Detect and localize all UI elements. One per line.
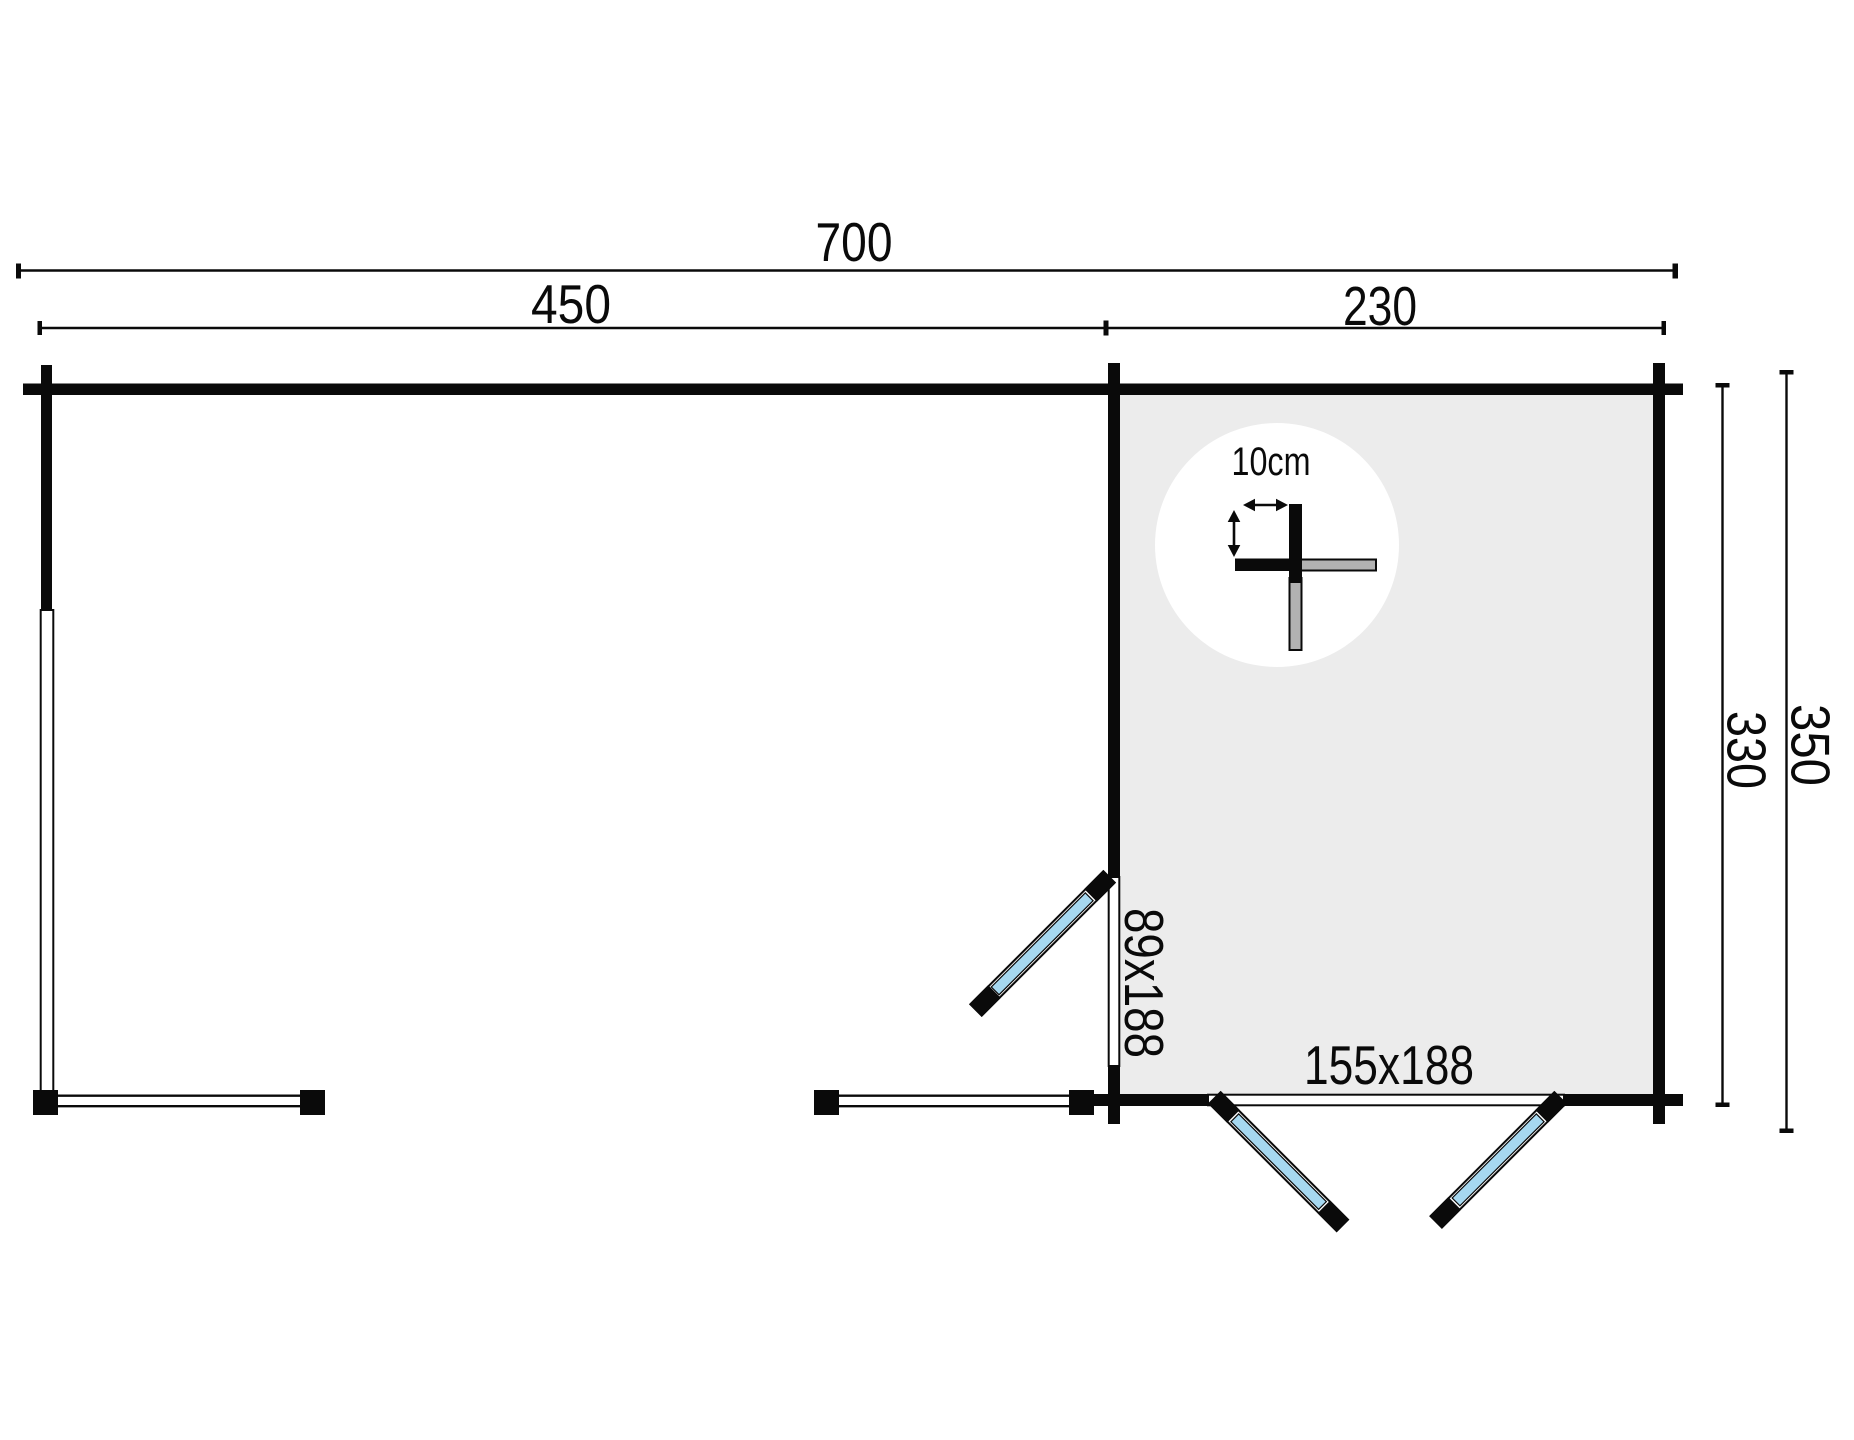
svg-text:10cm: 10cm [1232, 440, 1311, 484]
svg-text:350: 350 [1780, 704, 1842, 786]
svg-text:155x188: 155x188 [1304, 1034, 1474, 1096]
svg-text:450: 450 [531, 273, 611, 335]
svg-text:330: 330 [1716, 711, 1778, 789]
svg-text:89x188: 89x188 [1113, 908, 1175, 1058]
svg-text:700: 700 [816, 211, 893, 273]
svg-text:230: 230 [1343, 275, 1417, 337]
